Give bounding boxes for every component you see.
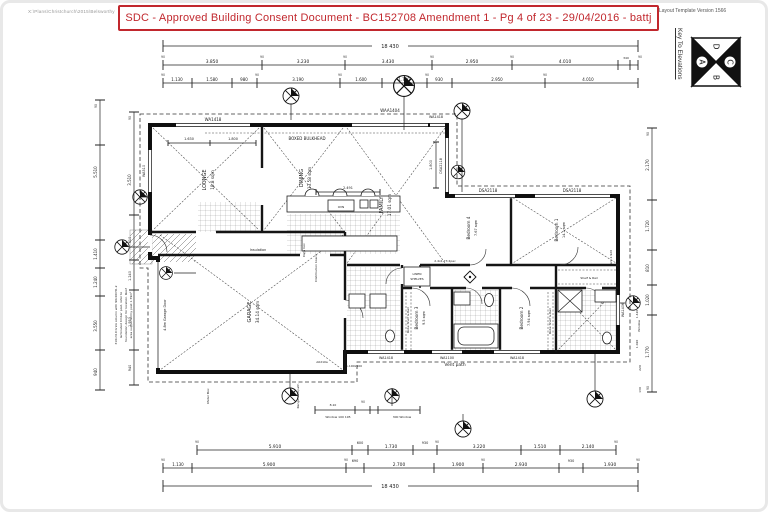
window-wa510-west [148,150,152,192]
dim-90: 90 [94,104,98,108]
label-dsa2118-c: DSA2118 [439,158,443,174]
dim-90: 90 [161,458,165,462]
dim: 1.130 [171,77,183,82]
label-data-box: Data box [302,243,306,257]
label-vent-right: Vent 2.920 [609,250,613,266]
svg-text:Bedroom 1: Bedroom 1 [554,218,559,241]
dim-90: 90 [255,73,259,77]
label-dsa2118-b: DSA2118 [563,188,582,193]
dim: 810 [645,264,650,272]
label-window-small: Window [637,320,641,332]
svg-text:LOUNGE: LOUNGE [202,170,208,191]
dim: 3.430 [382,59,395,65]
dim-90: 90 [435,440,439,444]
svg-text:7.94 sqm: 7.94 sqm [527,309,531,326]
svg-text:17.01 sqm: 17.01 sqm [387,194,392,216]
dimensions-right: 2.170 1.720 810 1.020 1.770 90 90 1.420 … [635,128,657,393]
dim: 5.910 [269,444,282,450]
label-wa1406: WA1406 [621,303,625,317]
elevation-marker [115,240,129,254]
dim: 1.720 [645,220,650,232]
svg-text:foundation design for location: foundation design for location. Roof [124,287,128,342]
dim: 8.10 [330,403,337,407]
label-shelf-rail: Shelf & Rail [580,276,597,280]
bath-toilet [485,294,494,307]
dim-90: 90 [430,55,434,59]
label-linen-1: LINEN [413,272,422,276]
label-dsa2118-a: DSA2118 [479,188,498,193]
dim: 2.930 [515,462,528,468]
bath-tub-inner [458,327,494,345]
dim: 930 [435,77,443,82]
dim: 1.580 [206,77,218,82]
svg-text:13.58 sqm: 13.58 sqm [307,167,312,189]
window-wa1100-south [432,350,462,354]
label-meter-box: Meter Box [206,388,210,403]
svg-text:9.5 sqm: 9.5 sqm [422,310,426,324]
dim-90: 90 [344,458,348,462]
dim-90: 90 [161,55,165,59]
dim: 1.020 [635,340,639,349]
dim-90: 90 [614,440,618,444]
dim-overall-top: 18 430 [381,44,399,50]
dim-overall-bottom: 18 430 [381,484,399,490]
elevation-marker [455,421,471,437]
window-wa1406-east [616,295,620,325]
label-insulation: Insulation [250,248,267,252]
svg-text:DINING: DINING [299,169,305,187]
dim: 2.140 [582,444,595,450]
dim-90: 90 [543,73,547,77]
label-size-note: 1.100x500 [346,364,362,368]
dim: 1.600 [355,77,367,82]
dim: 1.420 [635,310,639,319]
dim: 3.190 [292,77,304,82]
dim: 1.240 [128,271,132,281]
window-wa1418-top2 [430,123,445,127]
elevation-marker [626,296,640,310]
dim-90: 90 [128,116,132,120]
window-wa1418-top [176,123,250,127]
dim: 5.900 [263,462,276,468]
dim-90: 90 [646,386,650,390]
dim: 1.020 [645,294,650,306]
dimensions-bottom: 5.910 600 1.730 930 3.220 1.510 2.140 90… [161,440,640,492]
dim: 1.130 [172,462,184,467]
label-robe-note: 2.4x1.73 2pac [434,259,456,263]
laundry-tub [349,294,365,308]
dim: 1.800 [228,137,238,141]
dim: 3.230 [297,59,310,65]
label-garage-door: 4.8m Garage Door [163,299,167,331]
dim: 1.800 [429,160,433,170]
kitchen-island [302,236,397,251]
svg-text:Bedroom 4: Bedroom 4 [466,216,471,239]
svg-text:7.67 sqm: 7.67 sqm [474,219,478,236]
ensuite-vanity [595,290,616,302]
elevation-marker [394,76,415,97]
dim-90: 90 [361,400,365,404]
elevation-marker [283,88,299,104]
svg-text:14.1 sqm: 14.1 sqm [562,221,566,238]
dim-90: 90 [481,458,485,462]
label-oven: OVN [338,205,345,209]
label-wa1418-d: WA1418 [510,356,524,360]
label-wa1418-b: WA1418 [429,115,443,119]
elevation-marker [451,165,465,179]
dim: 4.010 [582,77,594,82]
svg-text:Bedroom 3: Bedroom 3 [414,306,419,329]
sink-bowl-2 [370,200,378,208]
svg-text:310x310 brick column with 90x9: 310x310 brick column with 90x90 H1.2 [114,285,118,344]
elevation-marker [282,388,298,404]
dim-90: 90 [510,55,514,59]
dim-90: 90 [425,73,429,77]
door-dsa2118-east [445,138,449,192]
plan-body: 1.630 1.800 2.491 1.800 8.10 90 Window 1… [114,76,641,437]
label-a0210a: A0210a [316,360,328,364]
entry-tiles [198,202,260,232]
door-dsa2118-north1 [455,194,515,198]
dim: 2.700 [393,462,406,468]
dim-90: 90 [646,132,650,136]
dim: 1.410 [93,248,98,260]
dim-90: 90 [161,73,165,77]
entry-door-opening [148,235,152,252]
dim: Window 100 195 [325,415,350,419]
label-linen-2: SHELVES [410,277,423,281]
dim: 1.240 [93,276,98,288]
floor-plan-drawing: 18 430 3.850 3.230 3.430 2.950 4.010 340… [0,0,768,512]
dim-90: 90 [338,73,342,77]
label-waa1404: WAA1404 [380,108,400,113]
window-wa1418-south1 [368,350,404,354]
label-wa510: WA510 [142,165,146,177]
label-wa1418-c: WA1418 [379,356,393,360]
dim: 1.930 [604,462,617,468]
dim: 1.770 [645,346,650,358]
label-distribution-board: Distribution board [314,254,318,281]
dim-90: 90 [638,55,642,59]
washing-machine [370,294,386,308]
dim: 220 [638,365,642,371]
svg-text:laminated timber post, refer t: laminated timber post, refer to [119,292,123,339]
door-dsa2118-north2 [535,194,610,198]
dim: 600 [357,441,363,445]
wc-toilet [386,330,395,342]
window-waa1404-top [352,123,428,127]
dim: 130 [638,387,642,393]
dim: 1.630 [184,137,194,141]
dim: 930 [568,459,574,463]
window-wa1418-south2 [494,350,540,354]
dim: 930 [422,441,428,445]
cooktop-arcs [305,189,375,196]
dim-90: 90 [636,458,640,462]
svg-text:Bedroom 2: Bedroom 2 [519,306,524,329]
dim: 690 [352,459,358,463]
dim: 300 Window [393,415,412,419]
svg-text:area supported by post 1.79m²: area supported by post 1.79m² [129,291,133,339]
dim: 1.730 [385,444,398,450]
dim: 3.850 [206,59,219,65]
dim: 4.010 [559,59,572,65]
bath-vanity [454,292,470,305]
svg-text:GARAGE: GARAGE [247,302,253,323]
label-wa1100: WA1100 [440,356,454,360]
dim: 940 [128,365,132,371]
dim: 3.510 [127,174,132,186]
label-boxed-bulkhead: BOXED BULKHEAD [288,136,325,141]
dim: 940 [93,368,98,376]
dim: 2.950 [466,59,479,65]
label-column-note: 310x310 brick column with 90x90 H1.2 lam… [114,285,133,344]
label-vent-path: Vent path [444,362,465,368]
scanned-floor-plan-page: X:\Plans\Christchurch\2015\Belsworthy SD… [0,0,768,512]
dim: 3.550 [93,320,98,332]
ensuite-toilet [603,332,612,344]
dim: 2.491 [343,186,353,190]
dim: 2.950 [491,77,503,82]
garage-door-opening [156,262,160,368]
dim: 980 [240,77,248,82]
dim-90: 90 [260,55,264,59]
dim-90: 90 [343,55,347,59]
dim: 5.510 [93,166,98,178]
dim: 1.510 [534,444,547,450]
elevation-marker [133,190,147,204]
dim-90: 90 [195,440,199,444]
dim: 340 [623,56,629,60]
label-robe-left: Robe Shelf & Rail [406,307,410,333]
dim: 1.900 [452,462,465,468]
svg-text:18.8 sqm: 18.8 sqm [210,170,215,190]
label-wa1418-a: WA1418 [205,117,222,122]
dim: 3.220 [473,444,486,450]
elevation-marker [454,103,470,119]
label-robe-right: Robe Shelf & Rail [548,308,552,334]
svg-text:FAMILY: FAMILY [379,196,385,214]
svg-text:34.14 sqm: 34.14 sqm [255,301,260,323]
sink-bowl-1 [360,200,368,208]
elevation-marker [587,391,603,407]
dim: 2.170 [645,159,650,171]
dimensions-top: 18 430 3.850 3.230 3.430 2.950 4.010 340… [161,40,642,88]
